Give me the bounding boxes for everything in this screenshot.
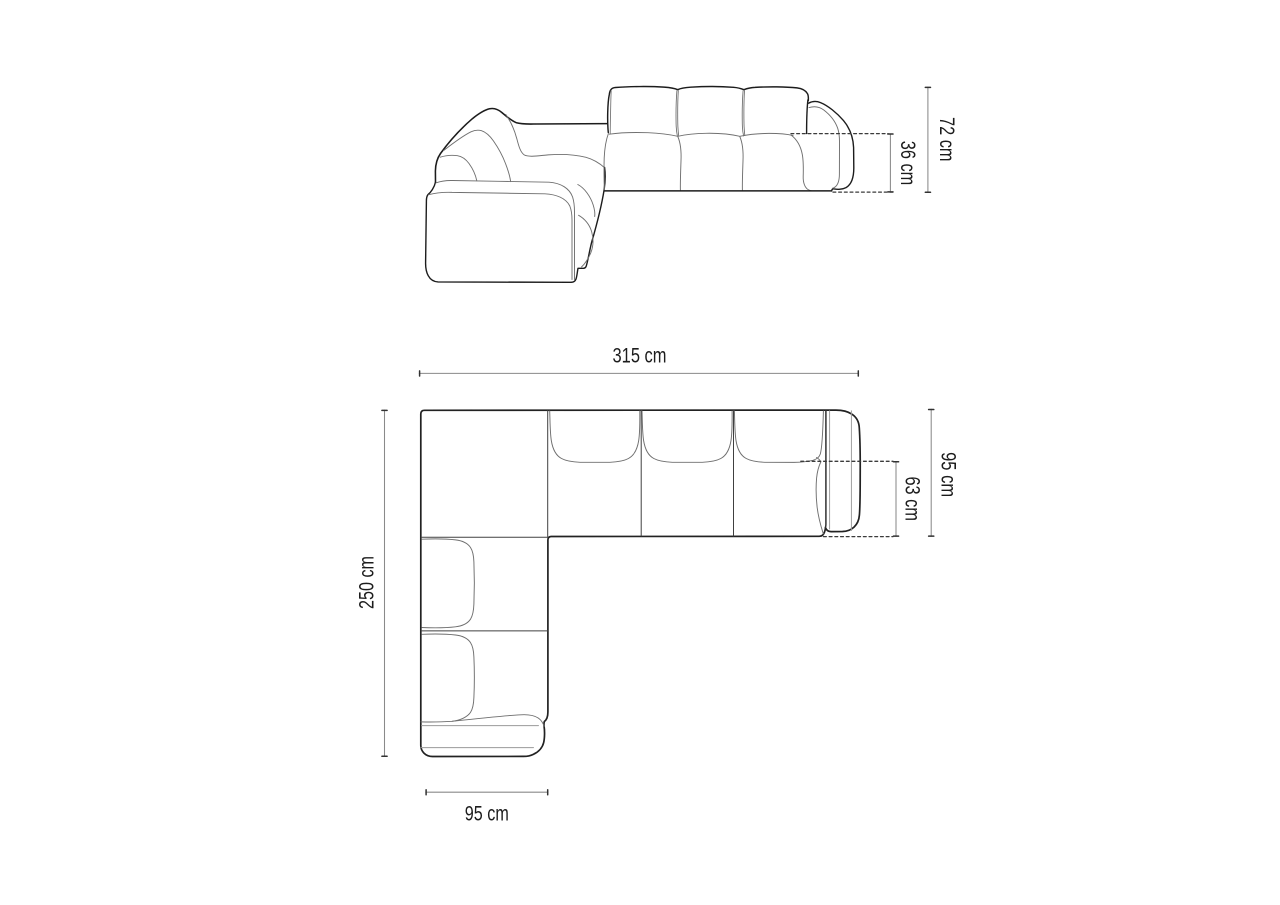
- svg-text:250 cm: 250 cm: [356, 556, 379, 609]
- svg-text:95 cm: 95 cm: [465, 803, 509, 826]
- svg-text:72 cm: 72 cm: [935, 117, 958, 162]
- svg-text:315 cm: 315 cm: [613, 344, 667, 367]
- svg-text:63 cm: 63 cm: [900, 476, 923, 521]
- svg-text:36 cm: 36 cm: [896, 141, 919, 186]
- svg-text:95 cm: 95 cm: [936, 452, 959, 497]
